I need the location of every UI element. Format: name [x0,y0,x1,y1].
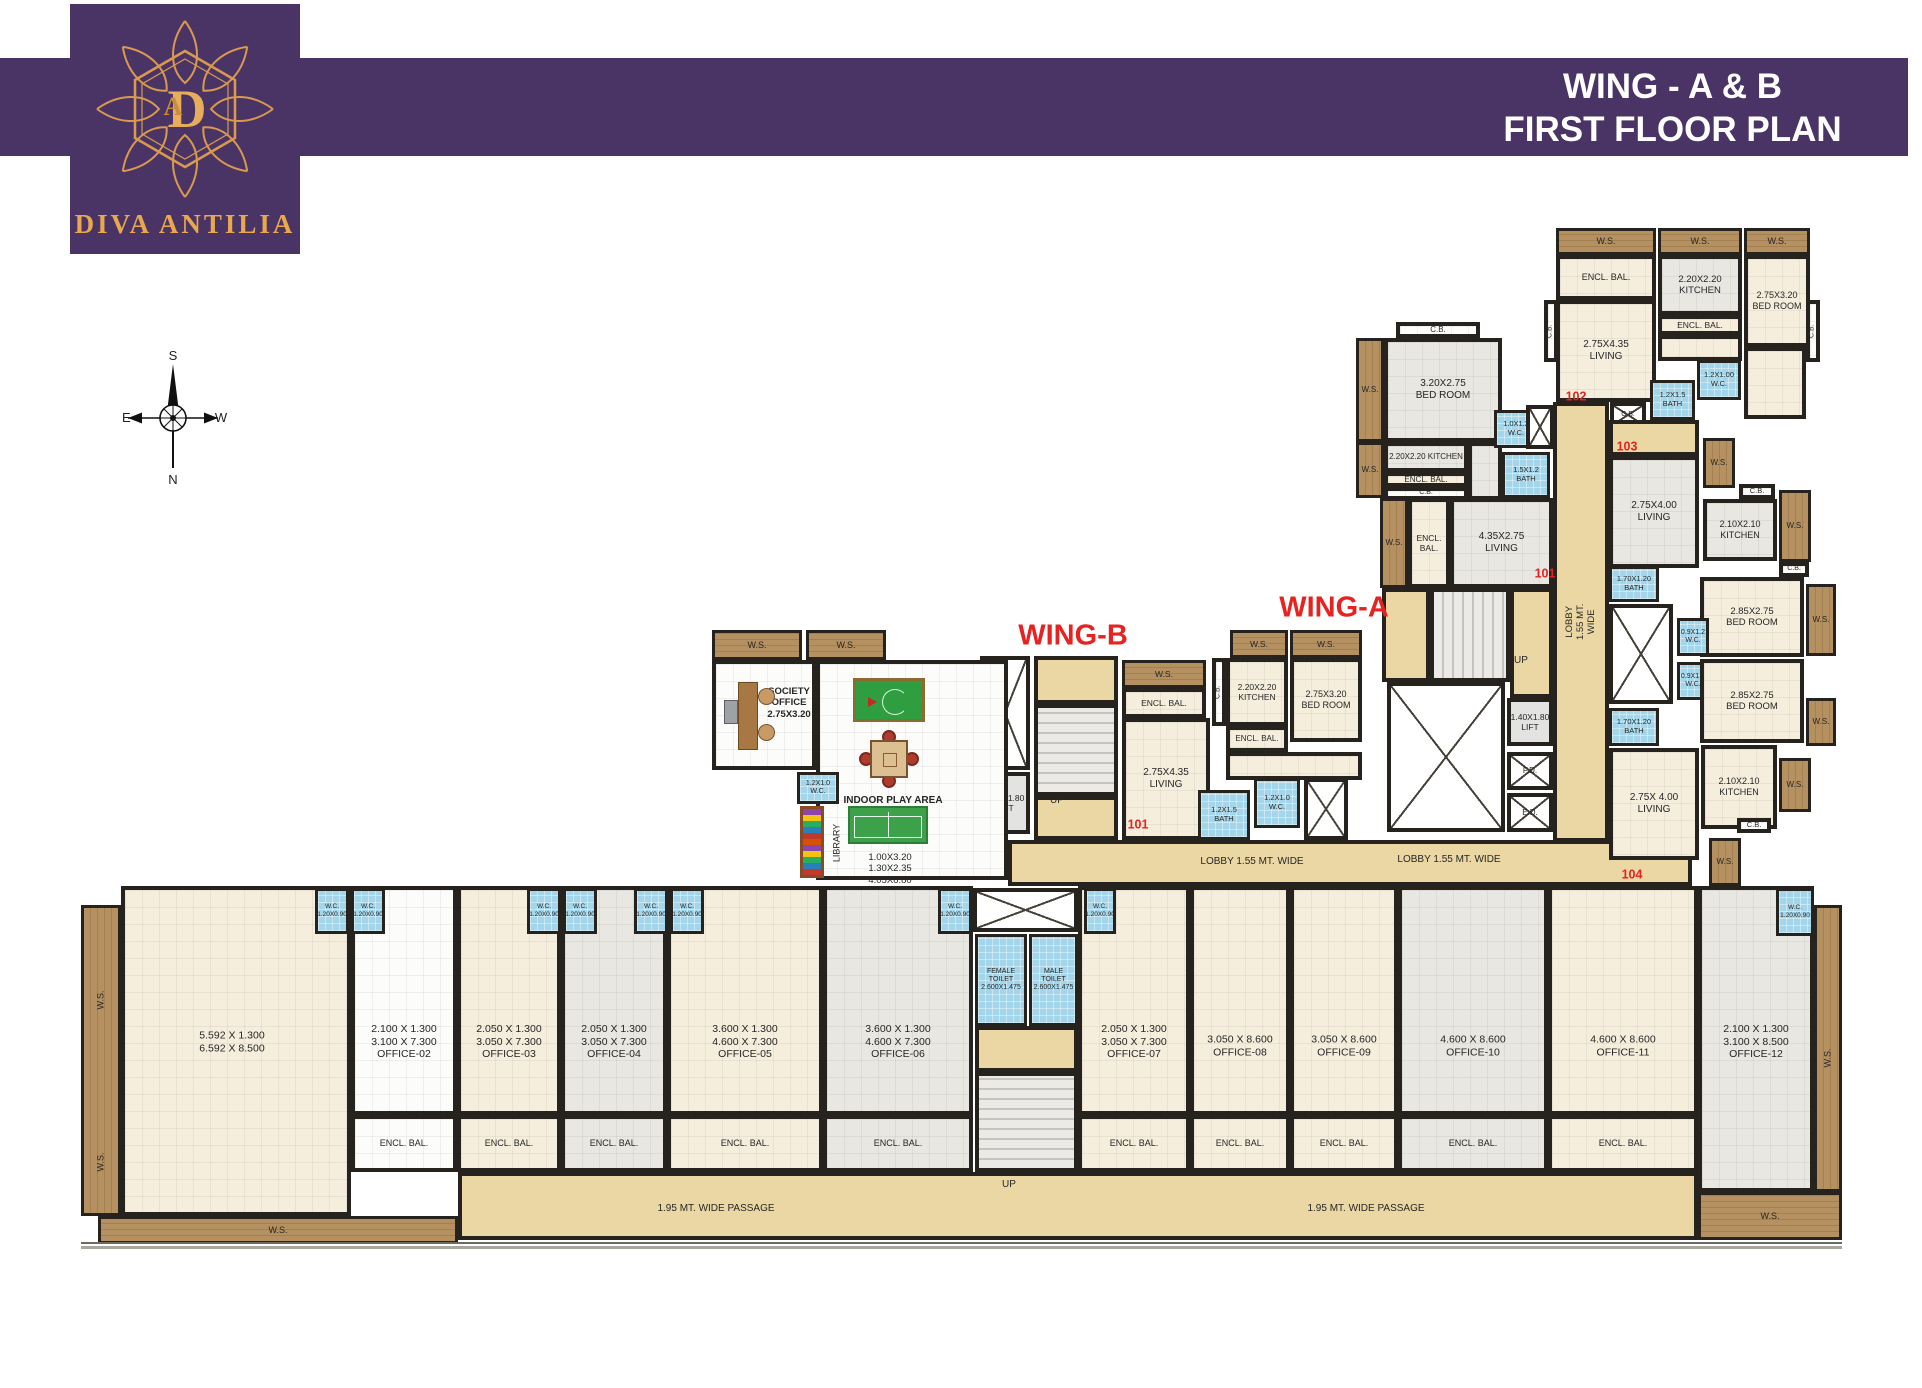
passage [458,1172,1698,1240]
plan-bottom-edge [81,1242,1842,1249]
wc-102-label: 1.2X1.00 W.C. [1704,371,1734,389]
wc-office-05-label: W.C. 1.20X0.90 [672,903,702,918]
ws-102-a-label: W.S. [1596,236,1615,247]
enclbal-101u-c-label: ENCL. BAL. [1416,533,1441,553]
wc-office-07: W.C. 1.20X0.90 [1084,888,1116,934]
lobby-vertical-label: LOBBY 1.55 MT. WIDE [1564,598,1598,646]
flat-104: 104 [1622,868,1643,883]
cb-101u-label: C.B. [1430,325,1446,334]
ws-104-a: W.S. [1806,698,1836,746]
living-102-label: 2.75X4.35 LIVING [1583,339,1629,363]
lobby-horizontal [1008,840,1692,886]
cbx-102-label: C.B. [1621,411,1635,419]
bath-101u-label: 1.5X1.2 BATH [1513,466,1539,484]
play-area-dims: 1.00X3.20 1.30X2.35 4.05X6.80 [868,852,911,886]
office-12-label: 2.100 X 1.300 3.100 X 8.500 OFFICE-12 [1723,1023,1788,1061]
office-05-label: 3.600 X 1.300 4.600 X 7.300 OFFICE-05 [712,1023,777,1061]
office-07-label: 2.050 X 1.300 3.050 X 7.300 OFFICE-07 [1101,1023,1166,1061]
office-04-label: 2.050 X 1.300 3.050 X 7.300 OFFICE-04 [581,1023,646,1061]
bedroom-104: 2.85X2.75 BED ROOM [1700,659,1804,743]
bedroom-wb101: 2.75X3.20 BED ROOM [1290,658,1362,742]
living-101u-label: 4.35X2.75 LIVING [1479,531,1525,555]
ws-104-c: W.S. [1709,838,1741,886]
bedroom-104-label: 2.85X2.75 BED ROOM [1726,690,1778,712]
wc-office-04b-label: W.C. 1.20X0.90 [636,903,666,918]
ws-wb101-a: W.S. [1122,660,1206,688]
ws-104-b: W.S. [1779,758,1811,812]
cb-102-right-label: C.B. [1809,324,1817,338]
enclbal-office-11-label: ENCL. BAL. [1599,1138,1648,1149]
kitchen-102: 2.20X2.20 KITCHEN [1658,255,1742,315]
bath-102-label: 1.2X1.5 BATH [1660,391,1686,409]
ws-102-c-label: W.S. [1767,236,1786,247]
living-104: 2.75X 4.00 LIVING [1609,748,1699,860]
office-10 [1398,886,1548,1115]
enclbal-office-04: ENCL. BAL. [561,1115,667,1172]
bedroom-102-label: 2.75X3.20 BED ROOM [1752,290,1801,311]
shaft-101u [1526,405,1554,449]
enclbal-office-06-label: ENCL. BAL. [874,1138,923,1149]
ws-society: W.S. [712,630,802,660]
logo-block: D A DIVA ANTILIA [70,4,300,254]
ws-wb101-a-label: W.S. [1155,669,1173,679]
enclbal-101u: ENCL. BAL. [1384,472,1468,487]
bath-101u: 1.5X1.2 BATH [1502,452,1550,498]
wc-office-12-label: W.C. 1.20X0.90 [1780,904,1810,919]
enclbal-102: ENCL. BAL. [1556,255,1656,300]
svg-text:A: A [164,92,183,121]
wc-office-06: W.C. 1.20X0.90 [938,888,972,934]
wc-103-label: 0.9X1.2 W.C. [1681,629,1705,646]
cb-103-b: C.B. [1779,562,1809,577]
wc-office-06-label: W.C. 1.20X0.90 [940,903,970,918]
enclbal-office-05-label: ENCL. BAL. [721,1138,770,1149]
ws-101u-c-label: W.S. [1386,538,1403,547]
enclbal-wb101-b: ENCL. BAL. [1226,726,1288,752]
lobby-label-wing-b: LOBBY 1.55 MT. WIDE [1200,856,1303,868]
enclbal-office-03: ENCL. BAL. [457,1115,561,1172]
up-bottom: UP [1002,1179,1016,1191]
stair-bottom [975,1072,1078,1172]
cb-101u-b-label: C.B. [1419,489,1433,497]
compass-east-label: E [122,410,131,425]
enclbal-office-11: ENCL. BAL. [1548,1115,1698,1172]
bath-wb101-label: 1.2X1.5 BATH [1211,806,1237,824]
void-wing-a [1387,682,1505,832]
kitchen-103-label: 2.10X2.10 KITCHEN [1719,519,1760,540]
toilet-male: MALE TOILET 2.600X1.475 [1029,934,1078,1026]
wc-office-04b: W.C. 1.20X0.90 [634,888,668,934]
ws-104-c-label: W.S. [1717,857,1734,866]
plan-title-line2: FIRST FLOOR PLAN [1500,109,1845,152]
bedroom-102: 2.75X3.20 BED ROOM [1744,255,1810,347]
ed-wing-a-label: E.D. [1522,808,1538,817]
flat-103: 103 [1617,440,1638,455]
cb-102-left: C.B. [1544,300,1558,362]
ws-101u-a-label: W.S. [1362,385,1379,394]
lobby-label-wing-a: LOBBY 1.55 MT. WIDE [1397,854,1500,866]
ws-right-label: W.S. [1823,1048,1834,1067]
enclbal-102-b-label: ENCL. BAL. [1677,320,1723,330]
wc-office-02-label: W.C. 1.20X0.90 [353,903,383,918]
ws-play: W.S. [806,630,886,660]
cb-wb101-label: C.B. [1215,685,1223,699]
bedroom-103: 2.85X2.75 BED ROOM [1700,577,1804,657]
filler-101u [1468,442,1502,500]
living-wb101-label: 2.75X4.35 LIVING [1143,767,1189,791]
bath-103-label: 1.70X1.20 BATH [1617,575,1651,593]
enclbal-office-02: ENCL. BAL. [351,1115,457,1172]
ws-society-label: W.S. [747,640,766,651]
bedroom-101u-label: 3.20X2.75 BED ROOM [1416,378,1470,402]
cb-104: C.B. [1737,818,1771,833]
bedroom-wb101-label: 2.75X3.20 BED ROOM [1301,689,1350,710]
filler-102-b [1744,347,1806,419]
wc-wb101: 1.2X1.0 W.C. [1254,778,1300,828]
stair-wing-b-landing [1034,656,1118,704]
ws-101u-c: W.S. [1380,498,1408,588]
wc-102: 1.2X1.00 W.C. [1697,360,1741,400]
ws-left-label-1: W.S. [96,990,107,1009]
ws-103-c: W.S. [1806,584,1836,656]
enclbal-office-02-label: ENCL. BAL. [380,1138,429,1149]
office-09 [1290,886,1398,1115]
enclbal-office-10-label: ENCL. BAL. [1449,1138,1498,1149]
bedroom-101u: 3.20X2.75 BED ROOM [1384,338,1502,442]
ws-103-c-label: W.S. [1813,615,1830,624]
toilet-lobby [975,1026,1078,1072]
floor-plan-canvas: D A DIVA ANTILIA WING - A & B FIRST FLOO… [0,0,1922,1388]
enclbal-office-08-label: ENCL. BAL. [1216,1138,1265,1149]
bath-102: 1.2X1.5 BATH [1650,380,1695,420]
wc-office-01-label: W.C. 1.20X0.90 [317,903,347,918]
enclbal-office-06: ENCL. BAL. [823,1115,973,1172]
kitchen-wb101-label: 2.20X2.20 KITCHEN [1238,682,1277,702]
ws-corner-bottom-right: W.S. [1698,1192,1842,1240]
cb-103: C.B. [1739,484,1775,499]
cb-104-label: C.B. [1747,821,1762,830]
wc-society: 1.2X1.0 W.C. [797,772,839,804]
wc-office-04-label: W.C. 1.20X0.90 [565,903,595,918]
compass-south-label: S [169,348,178,363]
wc-office-03: W.C. 1.20X0.90 [527,888,561,934]
ws-play-label: W.S. [836,640,855,651]
wc-office-07-label: W.C. 1.20X0.90 [1085,903,1115,918]
enclbal-office-04-label: ENCL. BAL. [590,1138,639,1149]
stair-wing-a [1430,588,1510,682]
enclbal-office-09: ENCL. BAL. [1290,1115,1398,1172]
play-court-icon [848,806,928,844]
shaft-wb101 [1304,778,1348,840]
stair-wing-b [1034,704,1118,796]
ws-102-a: W.S. [1556,228,1656,255]
enclbal-101u-label: ENCL. BAL. [1404,475,1447,484]
tanfill-wing-a [1510,588,1553,698]
kitchen-101u-label: 2.20X2.20 KITCHEN [1389,452,1463,461]
cb-101u: C.B. [1396,322,1480,338]
ws-101u-a: W.S. [1356,338,1384,442]
ws-104-a-label: W.S. [1813,717,1830,726]
living-102: 2.75X4.35 LIVING [1556,300,1656,402]
toilet-female-label: FEMALE TOILET 2.600X1.475 [981,968,1021,993]
shaft-toilet [973,888,1078,932]
toilet-male-label: MALE TOILET 2.600X1.475 [1034,968,1074,993]
ws-101u-b-label: W.S. [1362,465,1379,474]
wing-b-label: WING-B [1018,619,1128,654]
ws-104-b-label: W.S. [1787,780,1804,789]
stair-wing-b-low [1034,796,1118,840]
office-11-label: 4.600 X 8.600 OFFICE-11 [1590,1033,1655,1058]
carrom-table-icon [859,730,919,788]
lift-wing-a: 1.40X1.80 LIFT [1507,698,1553,746]
kitchen-101u: 2.20X2.20 KITCHEN [1384,442,1468,472]
brand-logo-icon: D A [70,4,300,204]
fd-wing-a: F.D. [1507,752,1553,790]
enclbal-101u-c: ENCL. BAL. [1408,498,1450,588]
wc-wb101-label: 1.2X1.0 W.C. [1264,794,1290,812]
living-104-label: 2.75X 4.00 LIVING [1630,792,1678,816]
passage-label-left: 1.95 MT. WIDE PASSAGE [657,1203,774,1215]
wc-office-01: W.C. 1.20X0.90 [315,888,349,934]
ws-103-b-label: W.S. [1787,521,1804,530]
ws-wb101-b-label: W.S. [1250,639,1268,649]
enclbal-office-08: ENCL. BAL. [1190,1115,1290,1172]
office-09-label: 3.050 X 8.600 OFFICE-09 [1311,1033,1376,1058]
office-11 [1548,886,1698,1115]
filler-wb101 [1226,752,1362,780]
filler-102-a [1658,335,1742,361]
ed-wing-a: E.D. [1507,793,1553,832]
enclbal-102-label: ENCL. BAL. [1582,272,1631,283]
office-06-label: 3.600 X 1.300 4.600 X 7.300 OFFICE-06 [865,1023,930,1061]
ws-102-b-label: W.S. [1690,236,1709,247]
enclbal-wb101-b-label: ENCL. BAL. [1235,734,1278,743]
flat-101-wing-b: 101 [1128,818,1149,833]
compass-west-label: W [215,410,228,425]
library-label: LIBRARY [832,824,843,862]
lift-wing-a-label: 1.40X1.80 LIFT [1511,712,1550,732]
cb-103-label: C.B. [1750,487,1765,496]
ws-103-a: W.S. [1703,438,1735,488]
ws-strip-bottom-left-label: W.S. [268,1225,287,1236]
society-office-label: SOCIETY OFFICE 2.75X3.20 [767,686,810,720]
plan-title-line1: WING - A & B [1500,66,1845,109]
enclbal-office-07: ENCL. BAL. [1078,1115,1190,1172]
ws-corner-bottom-right-label: W.S. [1760,1211,1779,1222]
ws-102-c: W.S. [1744,228,1810,255]
wc-office-04: W.C. 1.20X0.90 [563,888,597,934]
ws-103-a-label: W.S. [1711,458,1728,467]
wc-office-12: W.C. 1.20X0.90 [1776,888,1814,936]
up-wing-a: UP [1514,655,1528,667]
wc-office-03-label: W.C. 1.20X0.90 [529,903,559,918]
bath-wb101: 1.2X1.5 BATH [1198,790,1250,840]
lobby-vertical: LOBBY 1.55 MT. WIDE [1553,402,1609,842]
bedroom-103-label: 2.85X2.75 BED ROOM [1726,606,1778,628]
cb-103-b-label: C.B. [1787,565,1801,573]
flat-101-wing-a: 101 [1535,567,1556,582]
office-08 [1190,886,1290,1115]
library-bookshelf-icon [800,806,824,878]
enclbal-office-09-label: ENCL. BAL. [1320,1138,1369,1149]
plan-title: WING - A & B FIRST FLOOR PLAN [1500,66,1845,150]
brand-name: DIVA ANTILIA [70,209,300,240]
passage-label-right: 1.95 MT. WIDE PASSAGE [1307,1203,1424,1215]
billiards-table-icon [853,678,925,722]
compass-rose: S E W N [118,346,228,491]
bath-104-label: 1.70X1.20 BATH [1617,718,1651,736]
flat-102: 102 [1566,390,1587,405]
cb-102-right: C.B. [1806,300,1820,362]
office-01-label: 5.592 X 1.300 6.592 X 8.500 [199,1029,264,1054]
compass-north-label: N [168,472,177,487]
wc-office-02: W.C. 1.20X0.90 [351,888,385,934]
ws-wb101-c: W.S. [1290,630,1362,658]
ws-wb101-c-label: W.S. [1317,639,1335,649]
toilet-female: FEMALE TOILET 2.600X1.475 [975,934,1027,1026]
office-03-label: 2.050 X 1.300 3.050 X 7.300 OFFICE-03 [476,1023,541,1061]
wc-office-05: W.C. 1.20X0.90 [670,888,704,934]
living-103: 2.75X4.00 LIVING [1609,456,1699,568]
cb-102-left-label: C.B. [1547,324,1555,338]
enclbal-wb101: ENCL. BAL. [1122,688,1206,718]
living-103-label: 2.75X4.00 LIVING [1631,500,1677,524]
shaft-right [1609,604,1673,704]
kitchen-wb101: 2.20X2.20 KITCHEN [1226,658,1288,726]
office-10-label: 4.600 X 8.600 OFFICE-10 [1440,1033,1505,1058]
kitchen-103: 2.10X2.10 KITCHEN [1703,499,1777,561]
ws-103-b: W.S. [1779,490,1811,562]
kitchen-104: 2.10X2.10 KITCHEN [1701,745,1777,829]
wing-a-label: WING-A [1279,591,1389,626]
ws-101u-b: W.S. [1356,442,1384,498]
wc-society-label: 1.2X1.0 W.C. [806,780,830,797]
enclbal-office-07-label: ENCL. BAL. [1110,1138,1159,1149]
fd-wing-a-label: F.D. [1523,766,1537,775]
bath-103: 1.70X1.20 BATH [1609,566,1659,602]
up-wing-b: UP [1050,795,1064,807]
enclbal-wb101-label: ENCL. BAL. [1141,698,1187,708]
bath-104: 1.70X1.20 BATH [1609,708,1659,746]
enclbal-office-03-label: ENCL. BAL. [485,1138,534,1149]
office-08-label: 3.050 X 8.600 OFFICE-08 [1207,1033,1272,1058]
office-desk-icon [724,682,770,748]
office-02-label: 2.100 X 1.300 3.100 X 7.300 OFFICE-02 [371,1023,436,1061]
cb-wb101: C.B. [1212,658,1226,726]
ws-102-b: W.S. [1658,228,1742,255]
kitchen-104-label: 2.10X2.10 KITCHEN [1718,776,1759,797]
wc-103: 0.9X1.2 W.C. [1677,618,1709,656]
ws-wb101-b: W.S. [1230,630,1288,658]
ws-strip-bottom-left: W.S. [98,1216,458,1244]
enclbal-office-05: ENCL. BAL. [667,1115,823,1172]
enclbal-102-b: ENCL. BAL. [1658,315,1742,335]
enclbal-office-10: ENCL. BAL. [1398,1115,1548,1172]
kitchen-102-label: 2.20X2.20 KITCHEN [1678,274,1721,296]
ws-left-label-2: W.S. [96,1152,107,1171]
